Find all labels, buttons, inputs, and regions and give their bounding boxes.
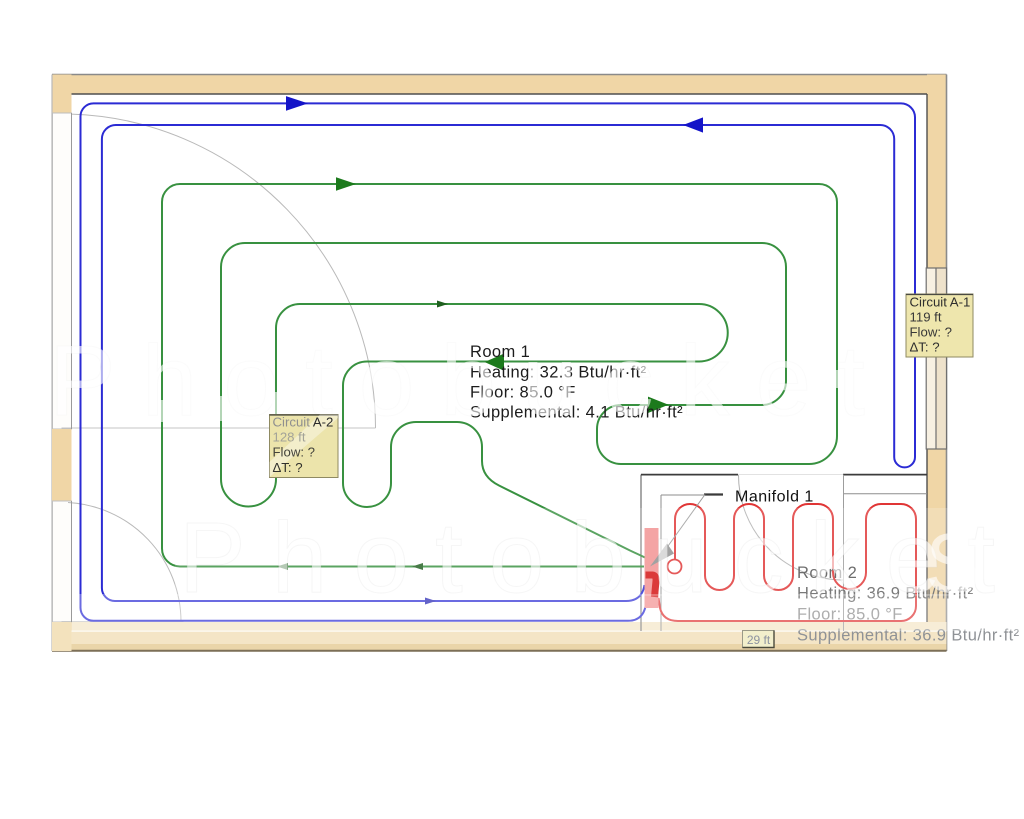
svg-text:ΔT: ?: ΔT: ? [910, 340, 940, 355]
svg-text:ΔT: ?: ΔT: ? [273, 460, 303, 475]
svg-text:Flow: ?: Flow: ? [910, 325, 953, 340]
svg-text:Photobucket: Photobucket [49, 325, 891, 437]
svg-text:119 ft: 119 ft [910, 310, 942, 325]
svg-text:Flow: ?: Flow: ? [273, 445, 316, 460]
svg-text:Circuit A-1: Circuit A-1 [910, 295, 971, 310]
svg-text:29 ft: 29 ft [747, 633, 771, 647]
svg-text:Circuit A-2: Circuit A-2 [273, 415, 334, 430]
svg-text:128 ft: 128 ft [273, 430, 306, 445]
